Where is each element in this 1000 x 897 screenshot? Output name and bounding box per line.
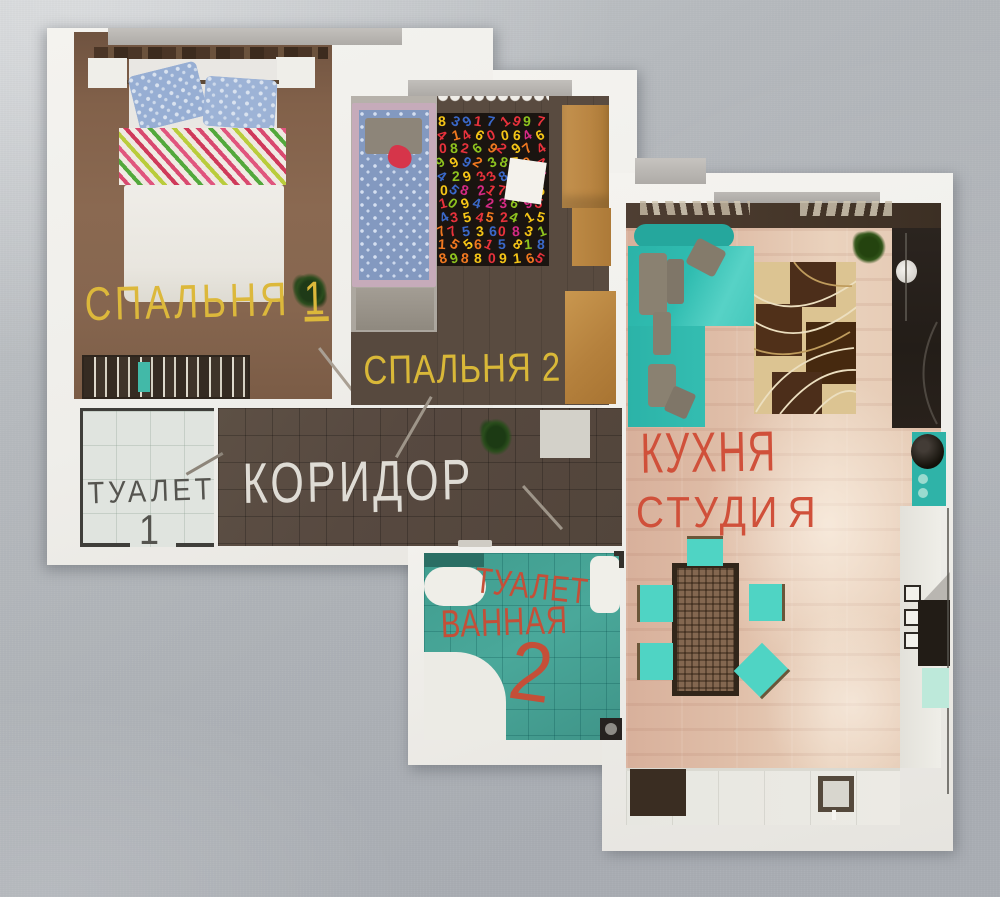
- svg-text:0: 0: [488, 250, 496, 266]
- svg-text:0: 0: [439, 140, 448, 156]
- svg-text:8: 8: [474, 250, 482, 266]
- svg-text:9: 9: [499, 250, 507, 266]
